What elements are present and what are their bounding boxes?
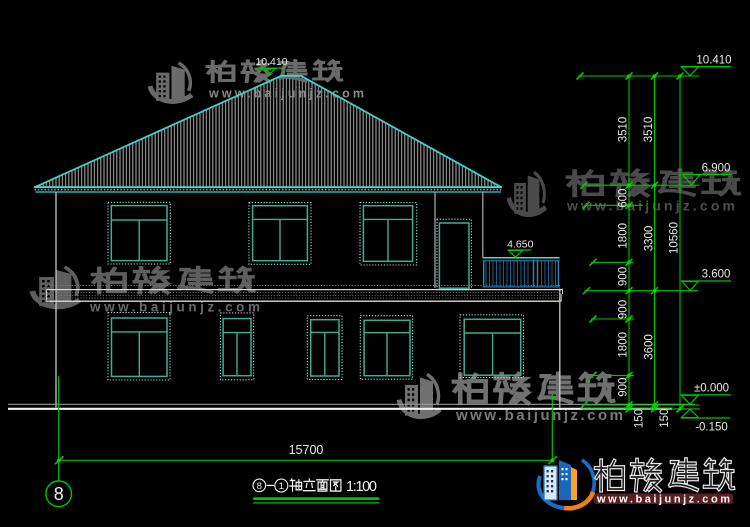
svg-text:±0.000: ±0.000	[694, 383, 729, 395]
svg-text:8: 8	[54, 484, 64, 504]
svg-text:10.410: 10.410	[696, 55, 731, 67]
svg-text:3600: 3600	[644, 334, 656, 360]
svg-text:150: 150	[659, 409, 671, 428]
svg-text:600: 600	[618, 189, 630, 208]
svg-text:1:100: 1:100	[346, 479, 377, 495]
svg-text:10560: 10560	[669, 222, 681, 254]
svg-text:-0.150: -0.150	[695, 422, 728, 434]
svg-text:3510: 3510	[618, 117, 630, 143]
svg-text:15700: 15700	[289, 443, 324, 457]
svg-text:900: 900	[618, 378, 630, 397]
svg-text:1800: 1800	[618, 332, 630, 358]
svg-text:4.650: 4.650	[507, 239, 533, 251]
svg-text:3.600: 3.600	[702, 269, 731, 281]
svg-text:1800: 1800	[618, 223, 630, 249]
svg-text:150: 150	[634, 409, 646, 428]
svg-text:10.410: 10.410	[255, 56, 287, 68]
svg-text:3510: 3510	[643, 117, 655, 143]
svg-text:3300: 3300	[644, 226, 656, 252]
svg-text:900: 900	[618, 300, 630, 319]
svg-text:900: 900	[618, 267, 630, 286]
svg-text:1: 1	[279, 481, 284, 492]
svg-text:6.900: 6.900	[702, 163, 731, 175]
svg-text:8: 8	[257, 481, 262, 492]
